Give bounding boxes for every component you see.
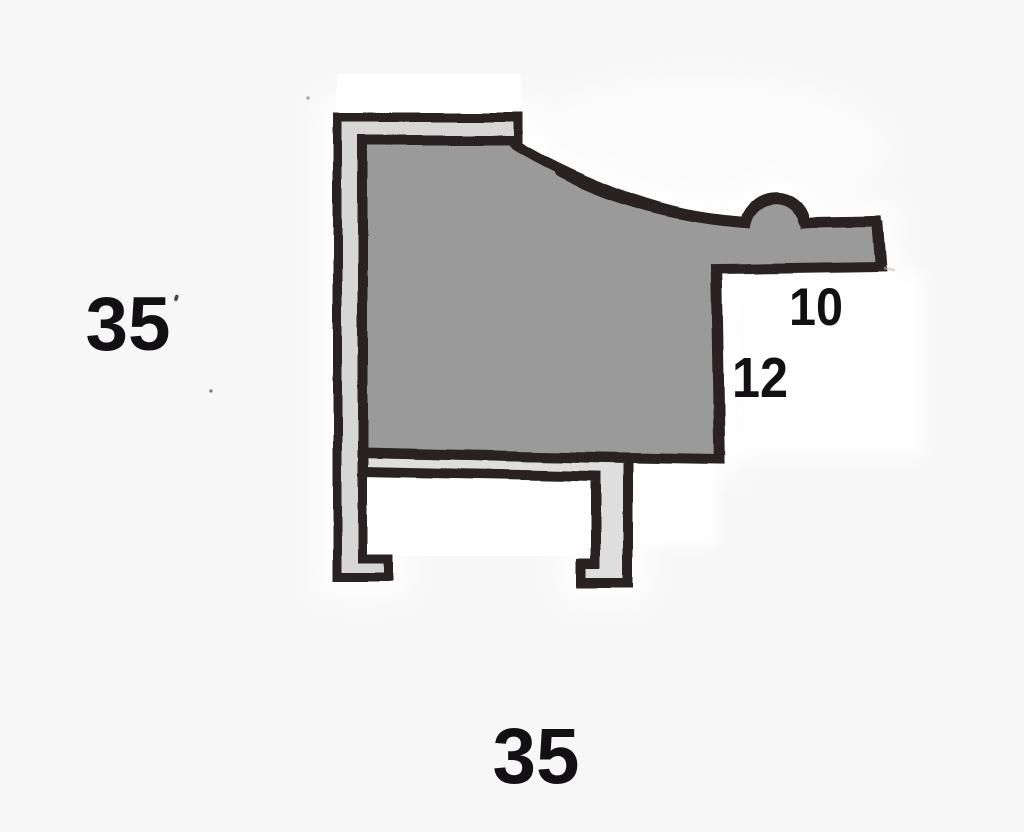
svg-text:12: 12 [732, 346, 788, 410]
svg-text:10: 10 [789, 278, 843, 337]
svg-text:35: 35 [86, 282, 171, 367]
svg-text:35: 35 [493, 711, 580, 800]
